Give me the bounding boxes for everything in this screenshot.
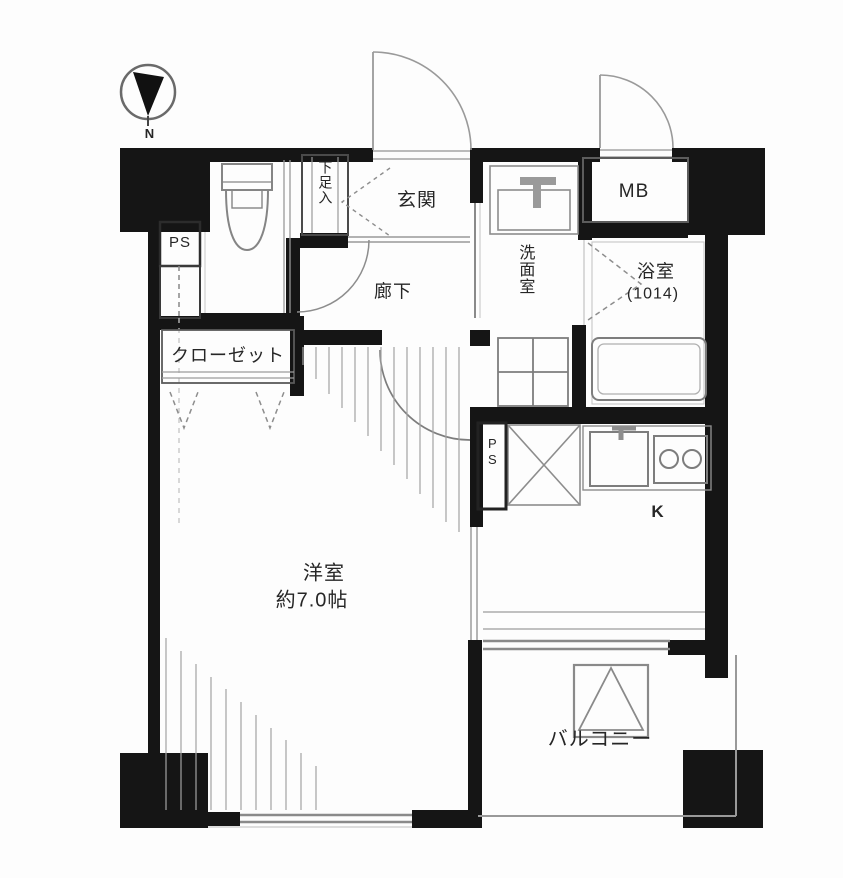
sink-fixture <box>590 432 648 486</box>
label-bathroom: 浴室 <box>637 263 675 282</box>
kitchen-counter <box>583 426 711 490</box>
floor-plan: N PS 下足入 玄関 MB 洗面室 浴室 (1014) 廊下 クローゼット 洋… <box>0 0 843 878</box>
laundry-pan-fixture <box>498 338 568 406</box>
label-balcony: バルコニー <box>548 730 653 751</box>
bath-folding-door <box>588 243 641 320</box>
label-entrance: 玄関 <box>397 191 437 211</box>
label-washroom: 洗面室 <box>516 244 533 295</box>
refrigerator-space <box>508 425 580 505</box>
label-pipe-space-upper: PS <box>169 235 191 251</box>
closet-fold-door-left <box>170 392 198 428</box>
label-meter-box: MB <box>619 182 650 202</box>
floor-plan-linework <box>0 0 843 878</box>
label-shoe-cabinet: 下足入 <box>318 160 333 205</box>
compass-icon <box>121 65 175 126</box>
stove-fixture <box>654 436 707 483</box>
label-western-room: 洋室 <box>303 564 345 585</box>
label-bathroom-size: (1014) <box>627 287 679 304</box>
label-pipe-space-kitchen: PS <box>485 436 499 468</box>
compass-north-label: N <box>145 127 155 141</box>
bathtub-fixture <box>592 338 706 400</box>
label-closet: クローゼット <box>171 347 285 366</box>
label-western-room-size: 約7.0帖 <box>276 591 349 612</box>
label-corridor: 廊下 <box>374 283 412 302</box>
partitions <box>160 150 736 827</box>
toilet-door-arc <box>297 240 369 312</box>
entrance-door-arc <box>373 52 471 150</box>
closet-fold-door-right <box>256 392 284 428</box>
evacuation-hatch <box>574 665 648 737</box>
label-kitchen: K <box>651 503 664 521</box>
toilet-fixture <box>222 164 272 250</box>
mb-door-arc <box>600 75 673 148</box>
washbasin-fixture <box>490 166 578 234</box>
shoe-cabinet-doors <box>342 168 390 236</box>
walls <box>120 148 765 828</box>
